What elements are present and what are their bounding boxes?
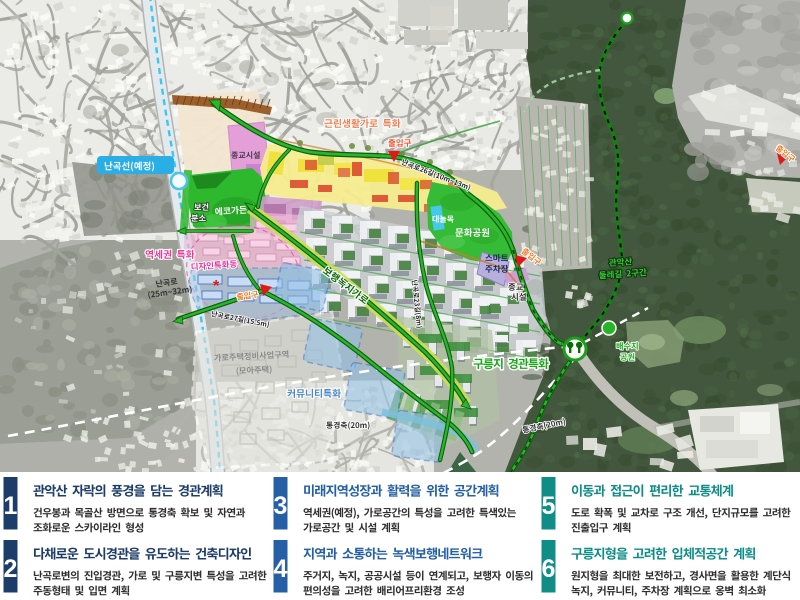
svg-text:*: *: [213, 278, 220, 295]
svg-text:3: 3: [274, 492, 288, 520]
svg-text:4: 4: [274, 555, 288, 583]
svg-text:1: 1: [4, 492, 18, 520]
svg-text:5: 5: [542, 492, 556, 520]
svg-text:6: 6: [542, 555, 556, 583]
svg-text:2: 2: [4, 555, 18, 583]
